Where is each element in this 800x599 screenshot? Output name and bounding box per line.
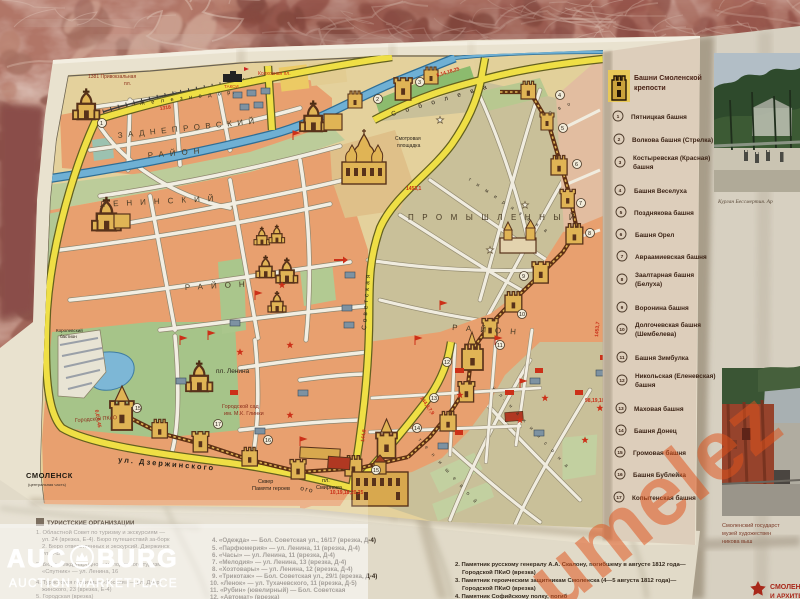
svg-text:8: 8	[588, 231, 591, 237]
svg-text:1: 1	[100, 121, 103, 127]
svg-text:Городской сад: Городской сад	[222, 403, 260, 410]
svg-text:1381 Привокзальная: 1381 Привокзальная	[88, 74, 136, 80]
svg-text:башня: башня	[633, 163, 654, 171]
svg-text:11: 11	[497, 343, 503, 349]
svg-text:14: 14	[618, 428, 624, 434]
svg-text:ТАКСИ: ТАКСИ	[224, 84, 239, 89]
svg-text:пл.: пл.	[322, 478, 330, 484]
svg-text:17: 17	[215, 422, 221, 428]
svg-text:ПРОМЫШЛЕННЫЙ: ПРОМЫШЛЕННЫЙ	[408, 213, 583, 222]
svg-text:10: 10	[619, 327, 625, 333]
svg-text:4: 4	[558, 93, 561, 99]
svg-text:Башня Веселуха: Башня Веселуха	[634, 188, 687, 195]
svg-text:(Белуха): (Белуха)	[635, 281, 662, 288]
svg-text:AUCTION MARKETPLACE: AUCTION MARKETPLACE	[9, 576, 178, 590]
svg-text:Долгочевская башня: Долгочевская башня	[635, 321, 701, 329]
svg-text:(центральная часть): (центральная часть)	[28, 482, 67, 487]
svg-text:2: 2	[376, 97, 379, 103]
svg-text:Смоленский государст: Смоленский государст	[722, 522, 780, 529]
svg-text:1453,1: 1453,1	[406, 186, 422, 192]
svg-text:никова выш: никова выш	[722, 539, 753, 545]
svg-text:И АРХИТЕ: И АРХИТЕ	[770, 593, 800, 599]
svg-text:14: 14	[414, 426, 420, 432]
svg-text:Пятницкая башня: Пятницкая башня	[631, 113, 687, 121]
svg-text:9: 9	[621, 305, 624, 311]
svg-text:8: 8	[621, 277, 624, 283]
svg-text:12: 12	[619, 378, 625, 384]
svg-text:AUC: AUC	[7, 545, 67, 573]
svg-text:Колхозная пл.: Колхозная пл.	[258, 71, 291, 77]
svg-text:Позднякова башня: Позднякова башня	[634, 209, 694, 217]
svg-text:Сквер: Сквер	[258, 479, 273, 485]
svg-text:Смирнова: Смирнова	[316, 485, 343, 491]
svg-text:Авраамиевская башня: Авраамиевская башня	[635, 253, 707, 261]
svg-text:10: 10	[519, 312, 525, 318]
svg-text:13: 13	[618, 406, 624, 412]
svg-text:СМОЛЕНСК: СМОЛЕНСК	[26, 471, 73, 480]
svg-text:3: 3	[619, 160, 622, 166]
svg-text:11: 11	[619, 355, 624, 361]
svg-text:Маховая башня: Маховая башня	[634, 405, 684, 413]
svg-text:им. М.К. Глинки: им. М.К. Глинки	[224, 411, 264, 417]
svg-text:площадка: площадка	[397, 143, 421, 149]
svg-text:Королевский: Королевский	[56, 327, 83, 333]
svg-text:Курган Бессмертия. Ар: Курган Бессмертия. Ар	[717, 199, 773, 205]
svg-text:башня: башня	[635, 381, 656, 389]
svg-text:7: 7	[621, 254, 624, 260]
svg-text:пл.: пл.	[124, 81, 131, 87]
svg-text:13: 13	[431, 396, 437, 402]
svg-text:1: 1	[617, 114, 620, 120]
svg-text:Городской ПКиО (врезка): Городской ПКиО (врезка)	[462, 585, 536, 592]
svg-text:15: 15	[135, 406, 141, 412]
svg-text:Башни Смоленской: Башни Смоленской	[634, 74, 702, 82]
svg-text:16: 16	[265, 438, 271, 444]
svg-text:9: 9	[522, 274, 525, 280]
svg-text:6: 6	[620, 232, 623, 238]
svg-text:бастион: бастион	[60, 334, 77, 339]
svg-text:6: 6	[575, 162, 578, 168]
svg-text:15: 15	[373, 468, 379, 474]
svg-text:15: 15	[617, 450, 623, 456]
svg-text:4: 4	[619, 188, 622, 194]
svg-text:музей художествен: музей художествен	[722, 530, 771, 537]
svg-text:Волкова башня (Стрелка): Волкова башня (Стрелка)	[632, 136, 713, 144]
svg-text:крепости: крепости	[634, 85, 666, 92]
svg-text:Воронина башня: Воронина башня	[635, 304, 689, 312]
svg-text:5: 5	[620, 210, 623, 216]
svg-text:Башня Орел: Башня Орел	[635, 232, 674, 239]
svg-text:(Шембелева): (Шембелева)	[635, 330, 676, 338]
svg-text:Заалтарная башня: Заалтарная башня	[635, 271, 694, 279]
svg-text:12: 12	[444, 360, 450, 366]
svg-text:BURG: BURG	[97, 545, 179, 573]
svg-text:Башня Зимбулка: Башня Зимбулка	[635, 354, 689, 362]
svg-text:7: 7	[579, 201, 582, 207]
svg-text:Смотровая: Смотровая	[395, 136, 421, 142]
svg-text:Никольская (Еленевская): Никольская (Еленевская)	[635, 373, 715, 380]
svg-text:Памяти героев: Памяти героев	[252, 486, 290, 492]
svg-text:2: 2	[618, 137, 621, 143]
svg-text:СМОЛЕНСКА: СМОЛЕНСКА	[770, 584, 800, 591]
svg-text:5: 5	[561, 126, 564, 132]
svg-text:3: 3	[418, 80, 421, 86]
svg-text:пл. Ленина: пл. Ленина	[216, 368, 250, 375]
svg-text:Костыревская (Красная): Костыревская (Красная)	[633, 155, 710, 162]
